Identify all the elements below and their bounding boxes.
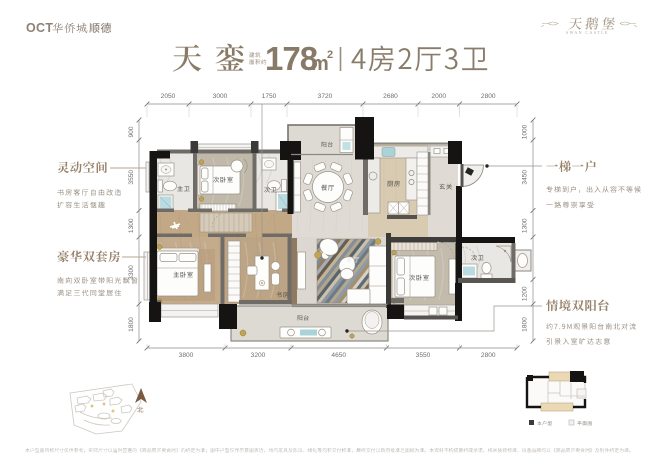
svg-text:3450: 3450: [522, 170, 529, 185]
svg-text:900: 900: [128, 126, 135, 137]
svg-text:3200: 3200: [251, 352, 266, 359]
svg-text:2800: 2800: [481, 352, 496, 359]
svg-text:2680: 2680: [383, 93, 398, 100]
svg-text:3550: 3550: [416, 352, 431, 359]
svg-text:SWAN CASTLE: SWAN CASTLE: [566, 30, 609, 35]
svg-text:1200: 1200: [522, 286, 529, 301]
svg-text:2000: 2000: [431, 93, 446, 100]
svg-text:1750: 1750: [262, 93, 277, 100]
svg-text:2800: 2800: [481, 93, 496, 100]
svg-text:3720: 3720: [318, 93, 333, 100]
svg-text:4650: 4650: [331, 352, 346, 359]
svg-text:3800: 3800: [179, 352, 194, 359]
svg-text:2050: 2050: [161, 93, 176, 100]
svg-text:3300: 3300: [128, 265, 135, 280]
svg-text:1300: 1300: [522, 218, 529, 233]
svg-text:OCT: OCT: [26, 21, 53, 35]
svg-text:1000: 1000: [522, 124, 529, 139]
svg-text:1800: 1800: [522, 317, 529, 332]
svg-text:1800: 1800: [128, 317, 135, 332]
svg-text:3550: 3550: [128, 170, 135, 185]
svg-text:2: 2: [327, 49, 333, 61]
svg-text:178: 178: [265, 40, 318, 77]
svg-text:3000: 3000: [213, 93, 228, 100]
svg-text:1300: 1300: [128, 218, 135, 233]
